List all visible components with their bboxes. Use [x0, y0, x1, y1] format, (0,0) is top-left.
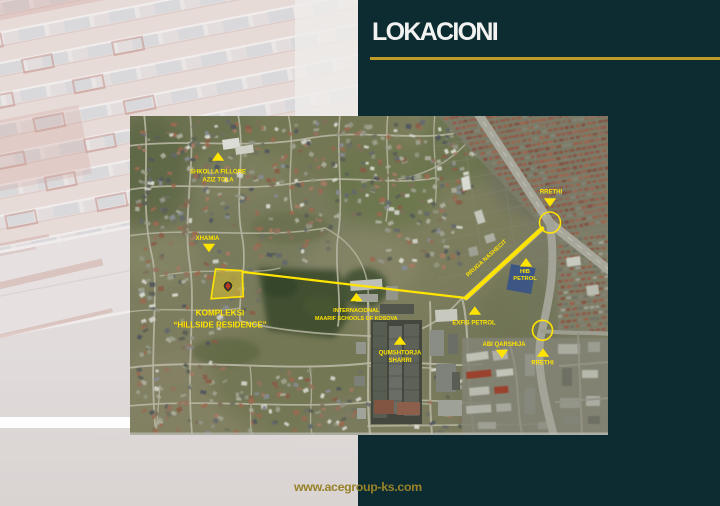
svg-text:RRETHI: RRETHI — [540, 190, 563, 196]
svg-text:AZIZ TOLA: AZIZ TOLA — [202, 178, 234, 184]
svg-text:ABI QARSHIJA: ABI QARSHIJA — [482, 342, 526, 348]
svg-text:XHAMIA: XHAMIA — [196, 236, 220, 242]
svg-text:“HILLSIDE RESIDENCE”: “HILLSIDE RESIDENCE” — [173, 321, 266, 330]
svg-text:INTERNACIONAL: INTERNACIONAL — [333, 308, 380, 314]
svg-text:SHKOLLA FILLORE: SHKOLLA FILLORE — [190, 170, 246, 176]
svg-text:MAARIF SCHOOLS OF KOSOVA: MAARIF SCHOOLS OF KOSOVA — [315, 316, 398, 322]
svg-text:EXFIS PETROL: EXFIS PETROL — [452, 321, 496, 327]
svg-text:RRETHI: RRETHI — [531, 361, 554, 367]
svg-text:PETROL: PETROL — [513, 276, 537, 282]
svg-text:SHARRI: SHARRI — [388, 358, 411, 364]
svg-text:QUMSHTORJA: QUMSHTORJA — [379, 351, 422, 357]
svg-text:KOMPLEKSI: KOMPLEKSI — [196, 309, 245, 318]
svg-text:HIB: HIB — [520, 269, 530, 275]
